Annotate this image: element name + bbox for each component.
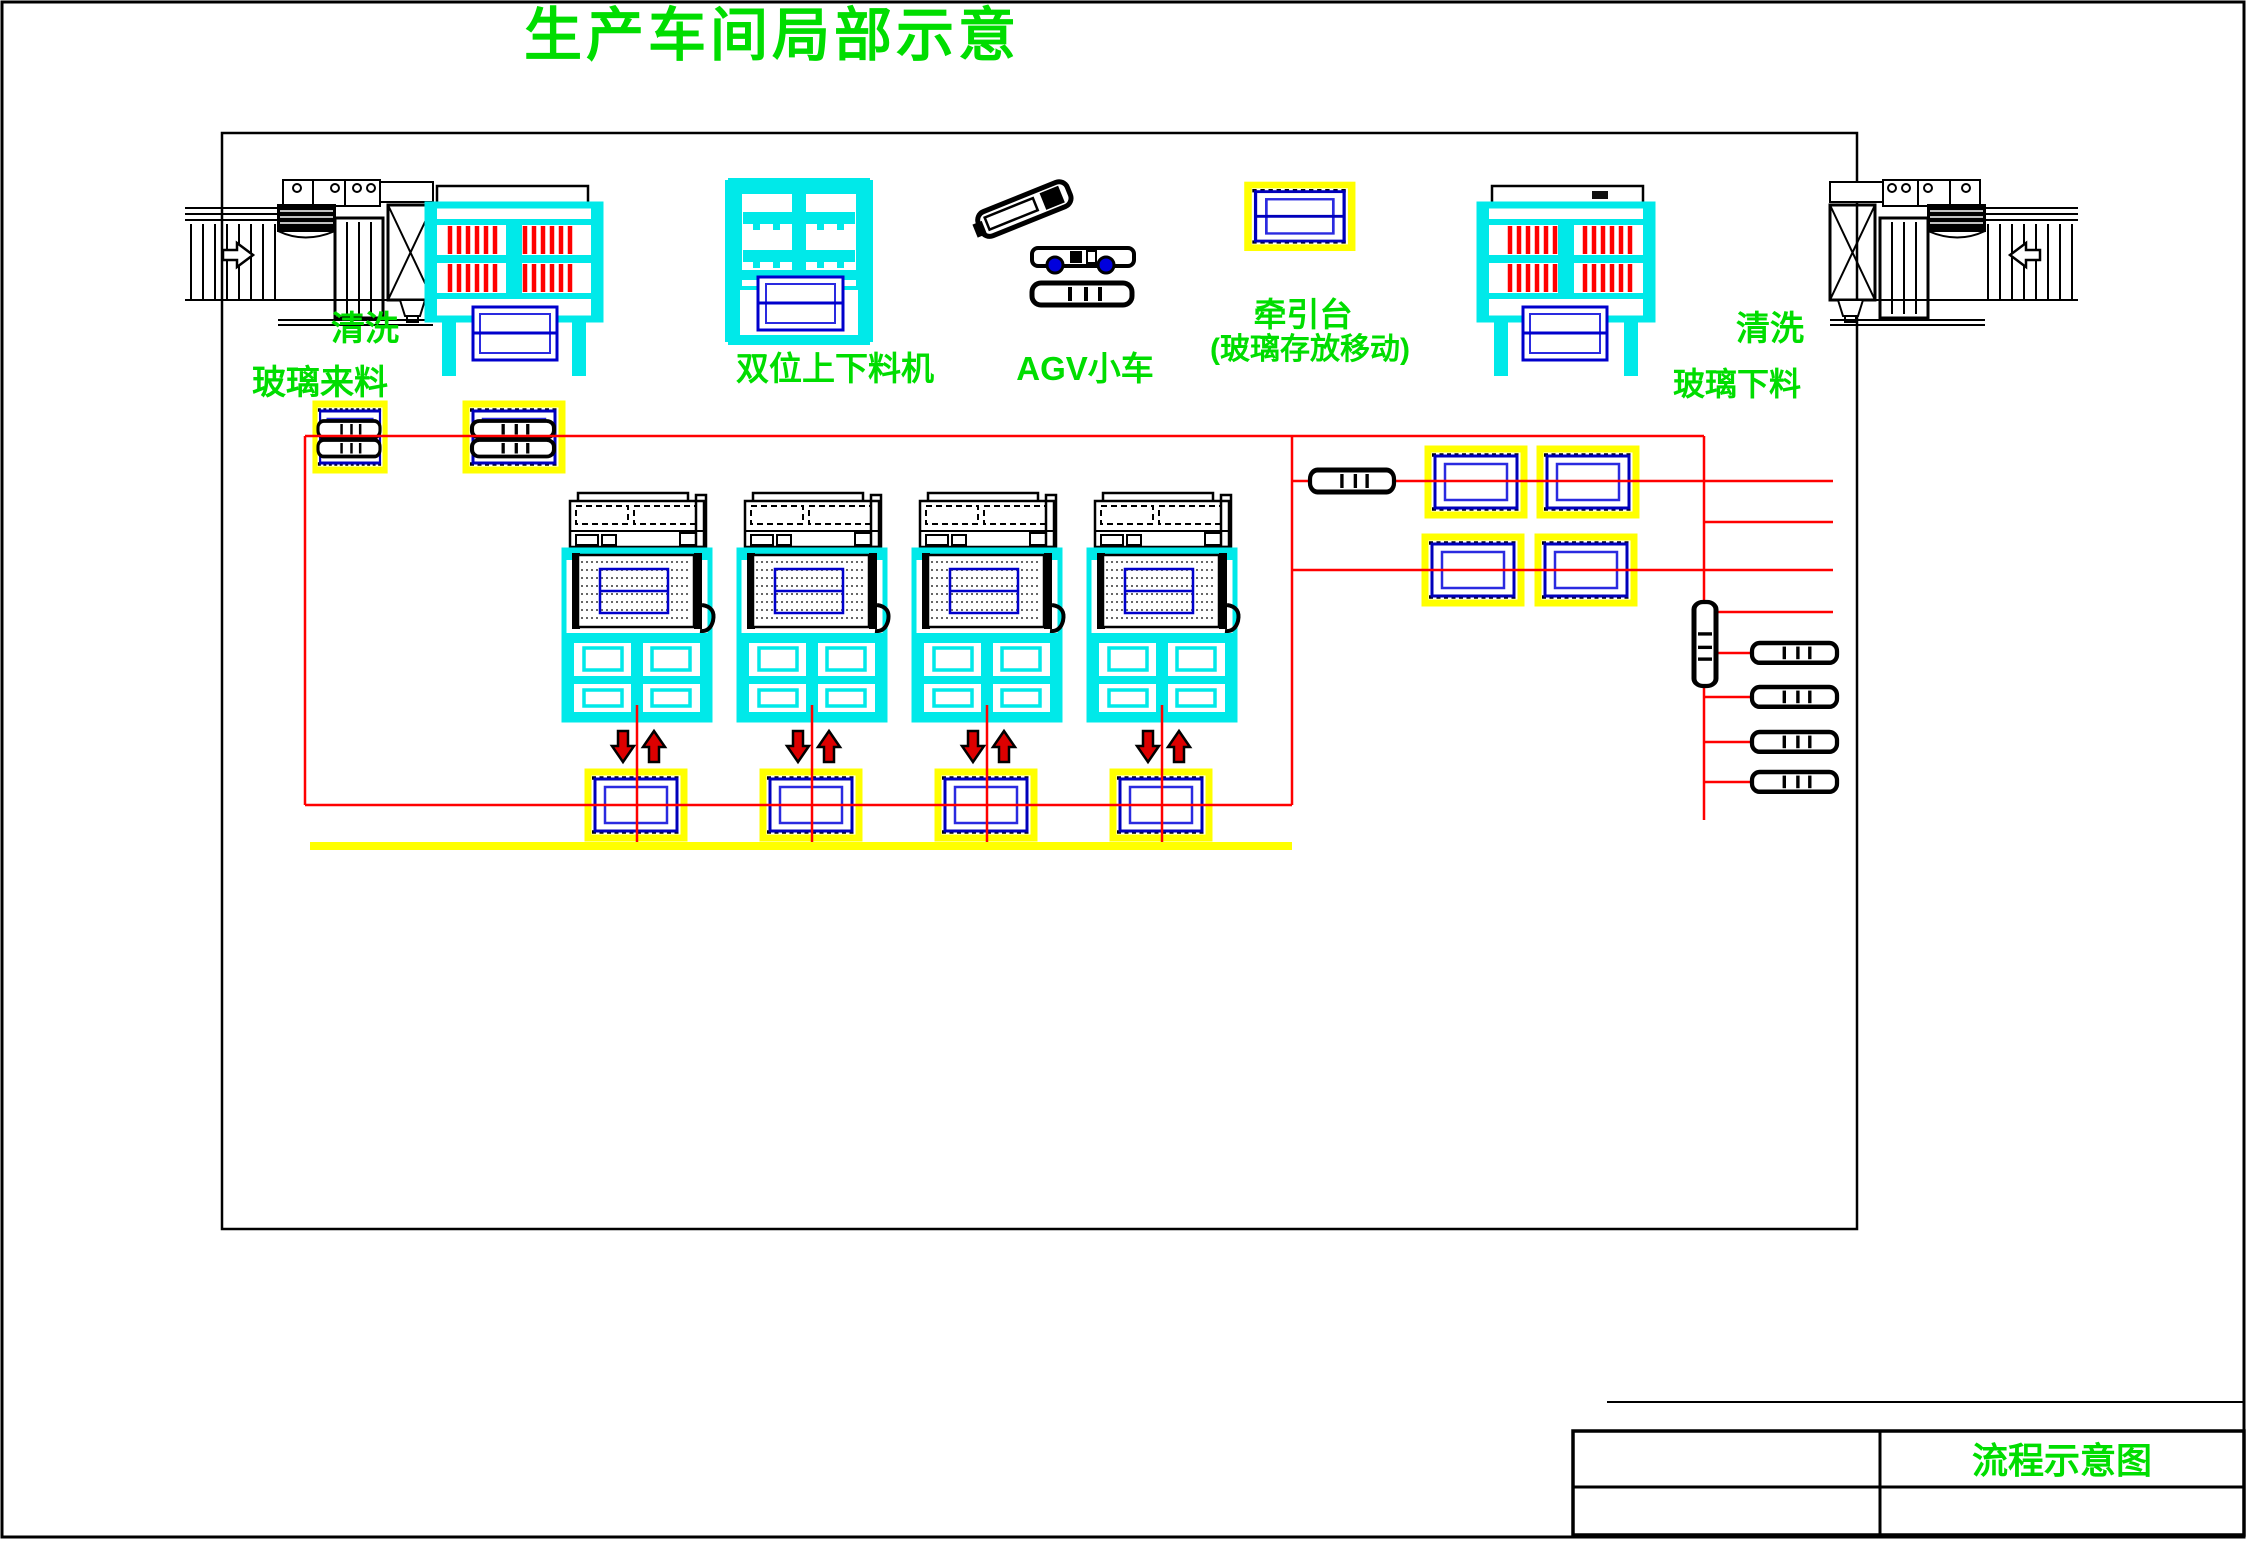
label-traction-name: 牵引台: [1203, 298, 1403, 333]
agv-branch-4: [1752, 770, 1837, 793]
agv-vertical: [1692, 602, 1718, 686]
down-arrow-2: [787, 731, 809, 762]
label-dual-loader: 双位上下料机: [635, 352, 1035, 387]
title-block-drawing-name: 流程示意图: [1882, 1442, 2242, 1480]
workshop-drawing-page: 生产车间局部示意 清洗 玻璃来料 双位上下料机 AGV小车 牵引台 (玻璃存放移…: [0, 0, 2246, 1543]
down-arrow-4: [1137, 731, 1159, 762]
agv-branch-3: [1752, 730, 1837, 753]
label-glass-incoming: 玻璃来料: [170, 366, 470, 402]
up-arrow-3: [993, 731, 1015, 762]
production-machine-2: [737, 493, 889, 720]
washing-machine-right: [1830, 180, 2078, 325]
up-arrow-1: [643, 731, 665, 762]
production-machine-3: [912, 493, 1064, 720]
agv-side-view: [1032, 248, 1134, 273]
label-wash-left: 清洗: [265, 312, 465, 348]
agv-top-view: [1032, 281, 1132, 307]
down-arrow-3: [962, 731, 984, 762]
label-wash-right: 清洗: [1670, 312, 1870, 348]
dual-loader-machine: [725, 178, 873, 345]
up-arrow-2: [818, 731, 840, 762]
label-glass-outgoing: 玻璃下料: [1587, 368, 1887, 402]
production-machine-1: [562, 493, 714, 720]
agv-isometric-view: [969, 179, 1073, 241]
agv-on-line-left: [1310, 468, 1394, 494]
agv-branch-1: [1752, 641, 1837, 664]
up-arrow-4: [1168, 731, 1190, 762]
agv-branch-2: [1752, 685, 1837, 708]
production-machine-4: [1087, 493, 1239, 720]
drawing-canvas: [0, 0, 2246, 1543]
drawing-title: 生产车间局部示意: [272, 6, 1272, 67]
traction-platform-box: [1248, 185, 1352, 248]
label-traction-note: (玻璃存放移动): [1110, 334, 1510, 366]
down-arrow-1: [612, 731, 634, 762]
rack-top-marking: [1592, 191, 1608, 199]
